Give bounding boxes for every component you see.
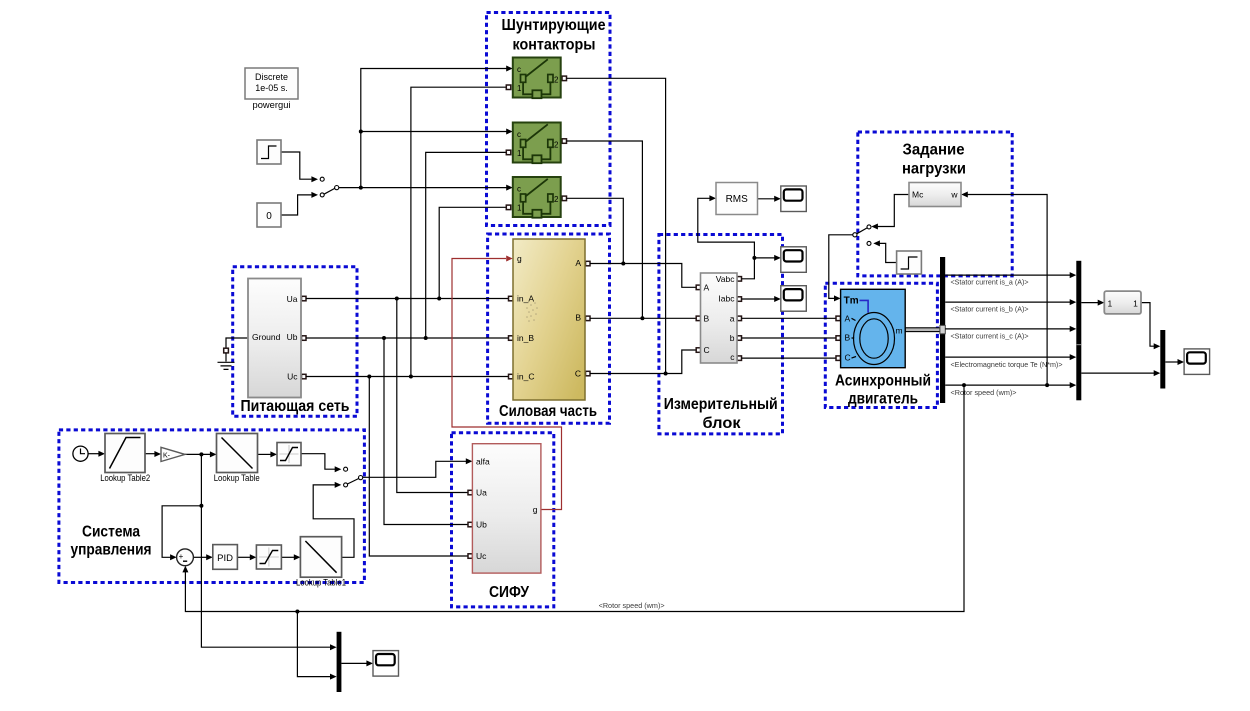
svg-text:Ua: Ua xyxy=(287,294,298,304)
svg-text:1: 1 xyxy=(1133,299,1138,309)
svg-text:B: B xyxy=(575,313,581,323)
svg-text:блок: блок xyxy=(703,415,742,432)
svg-text:C: C xyxy=(704,345,710,355)
svg-text:контакторы: контакторы xyxy=(513,37,596,54)
svg-text:A: A xyxy=(704,282,710,292)
svg-text:PID: PID xyxy=(217,553,233,564)
svg-text:+: + xyxy=(179,552,184,561)
svg-text:Задание: Задание xyxy=(903,142,965,159)
svg-text:g: g xyxy=(517,254,522,264)
svg-text:Ground: Ground xyxy=(252,332,281,342)
svg-text:Ua: Ua xyxy=(476,488,487,498)
svg-text:in_A: in_A xyxy=(517,294,534,304)
svg-text:A: A xyxy=(575,258,581,268)
svg-text:1: 1 xyxy=(1108,299,1113,309)
svg-text:C: C xyxy=(845,352,851,362)
svg-text:Ub: Ub xyxy=(287,332,298,342)
svg-text:Uc: Uc xyxy=(476,551,487,561)
svg-text:Uc: Uc xyxy=(287,372,298,382)
svg-text:<Electromagnetic torque Te (N*: <Electromagnetic torque Te (N*m)> xyxy=(951,360,1064,369)
svg-text:RMS: RMS xyxy=(726,194,749,205)
svg-text:A: A xyxy=(845,313,851,323)
svg-text:Шунтирующие: Шунтирующие xyxy=(502,17,606,34)
svg-text:g: g xyxy=(533,505,538,515)
svg-text:Lookup Table1: Lookup Table1 xyxy=(296,578,346,588)
svg-text:Асинхронный: Асинхронный xyxy=(835,372,931,389)
svg-text:B: B xyxy=(845,332,851,342)
svg-text:управления: управления xyxy=(71,542,152,559)
svg-text:a: a xyxy=(730,313,735,323)
svg-text:K-: K- xyxy=(163,452,171,459)
svg-text:<Rotor speed (wm)>: <Rotor speed (wm)> xyxy=(951,388,1018,397)
svg-text:powergui: powergui xyxy=(253,100,291,111)
svg-text:<Stator current is_c (A)>: <Stator current is_c (A)> xyxy=(951,332,1030,341)
svg-text:1e-05 s.: 1e-05 s. xyxy=(255,83,288,93)
svg-text:0: 0 xyxy=(266,211,272,222)
svg-text:Система: Система xyxy=(82,524,140,541)
svg-text:Измерительный: Измерительный xyxy=(664,396,778,413)
svg-text:Iabc: Iabc xyxy=(718,294,735,304)
svg-text:Tm: Tm xyxy=(844,296,859,307)
svg-text:m: m xyxy=(896,326,903,336)
svg-text:in_C: in_C xyxy=(517,372,534,382)
svg-text:Mc: Mc xyxy=(912,190,924,200)
svg-text:СИФУ: СИФУ xyxy=(489,584,530,601)
svg-text:b: b xyxy=(730,333,735,343)
svg-text:alfa: alfa xyxy=(476,456,490,466)
svg-text:Ub: Ub xyxy=(476,520,487,530)
svg-text:двигатель: двигатель xyxy=(848,391,918,408)
svg-text:w: w xyxy=(950,190,958,200)
svg-text:нагрузки: нагрузки xyxy=(902,160,966,177)
svg-text:Vabc: Vabc xyxy=(716,274,735,284)
svg-text:Силовая часть: Силовая часть xyxy=(499,403,597,420)
svg-text:Discrete: Discrete xyxy=(255,72,288,82)
svg-text:B: B xyxy=(704,313,710,323)
svg-text:<Rotor speed (wm)>: <Rotor speed (wm)> xyxy=(599,601,666,610)
svg-text:<Stator current is_a (A)>: <Stator current is_a (A)> xyxy=(951,278,1030,287)
svg-text:Lookup Table: Lookup Table xyxy=(214,473,260,483)
svg-text:Питающая сеть: Питающая сеть xyxy=(241,398,350,415)
svg-text:in_B: in_B xyxy=(517,333,534,343)
svg-text:Lookup Table2: Lookup Table2 xyxy=(100,473,150,483)
svg-text:<Stator current is_b (A)>: <Stator current is_b (A)> xyxy=(951,305,1030,314)
svg-text:C: C xyxy=(575,369,581,379)
